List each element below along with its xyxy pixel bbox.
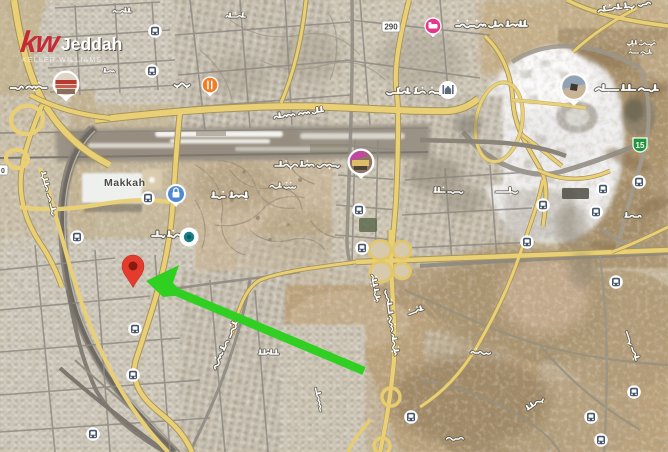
- svg-text:KELLER WILLIAMS.: KELLER WILLIAMS.: [22, 57, 105, 64]
- svg-text:290: 290: [384, 23, 398, 32]
- svg-text:Jeddah: Jeddah: [61, 34, 122, 54]
- svg-text:15: 15: [636, 141, 645, 150]
- svg-text:kw: kw: [19, 26, 63, 59]
- svg-text:Makkah: Makkah: [104, 177, 146, 189]
- svg-text:0: 0: [1, 168, 5, 175]
